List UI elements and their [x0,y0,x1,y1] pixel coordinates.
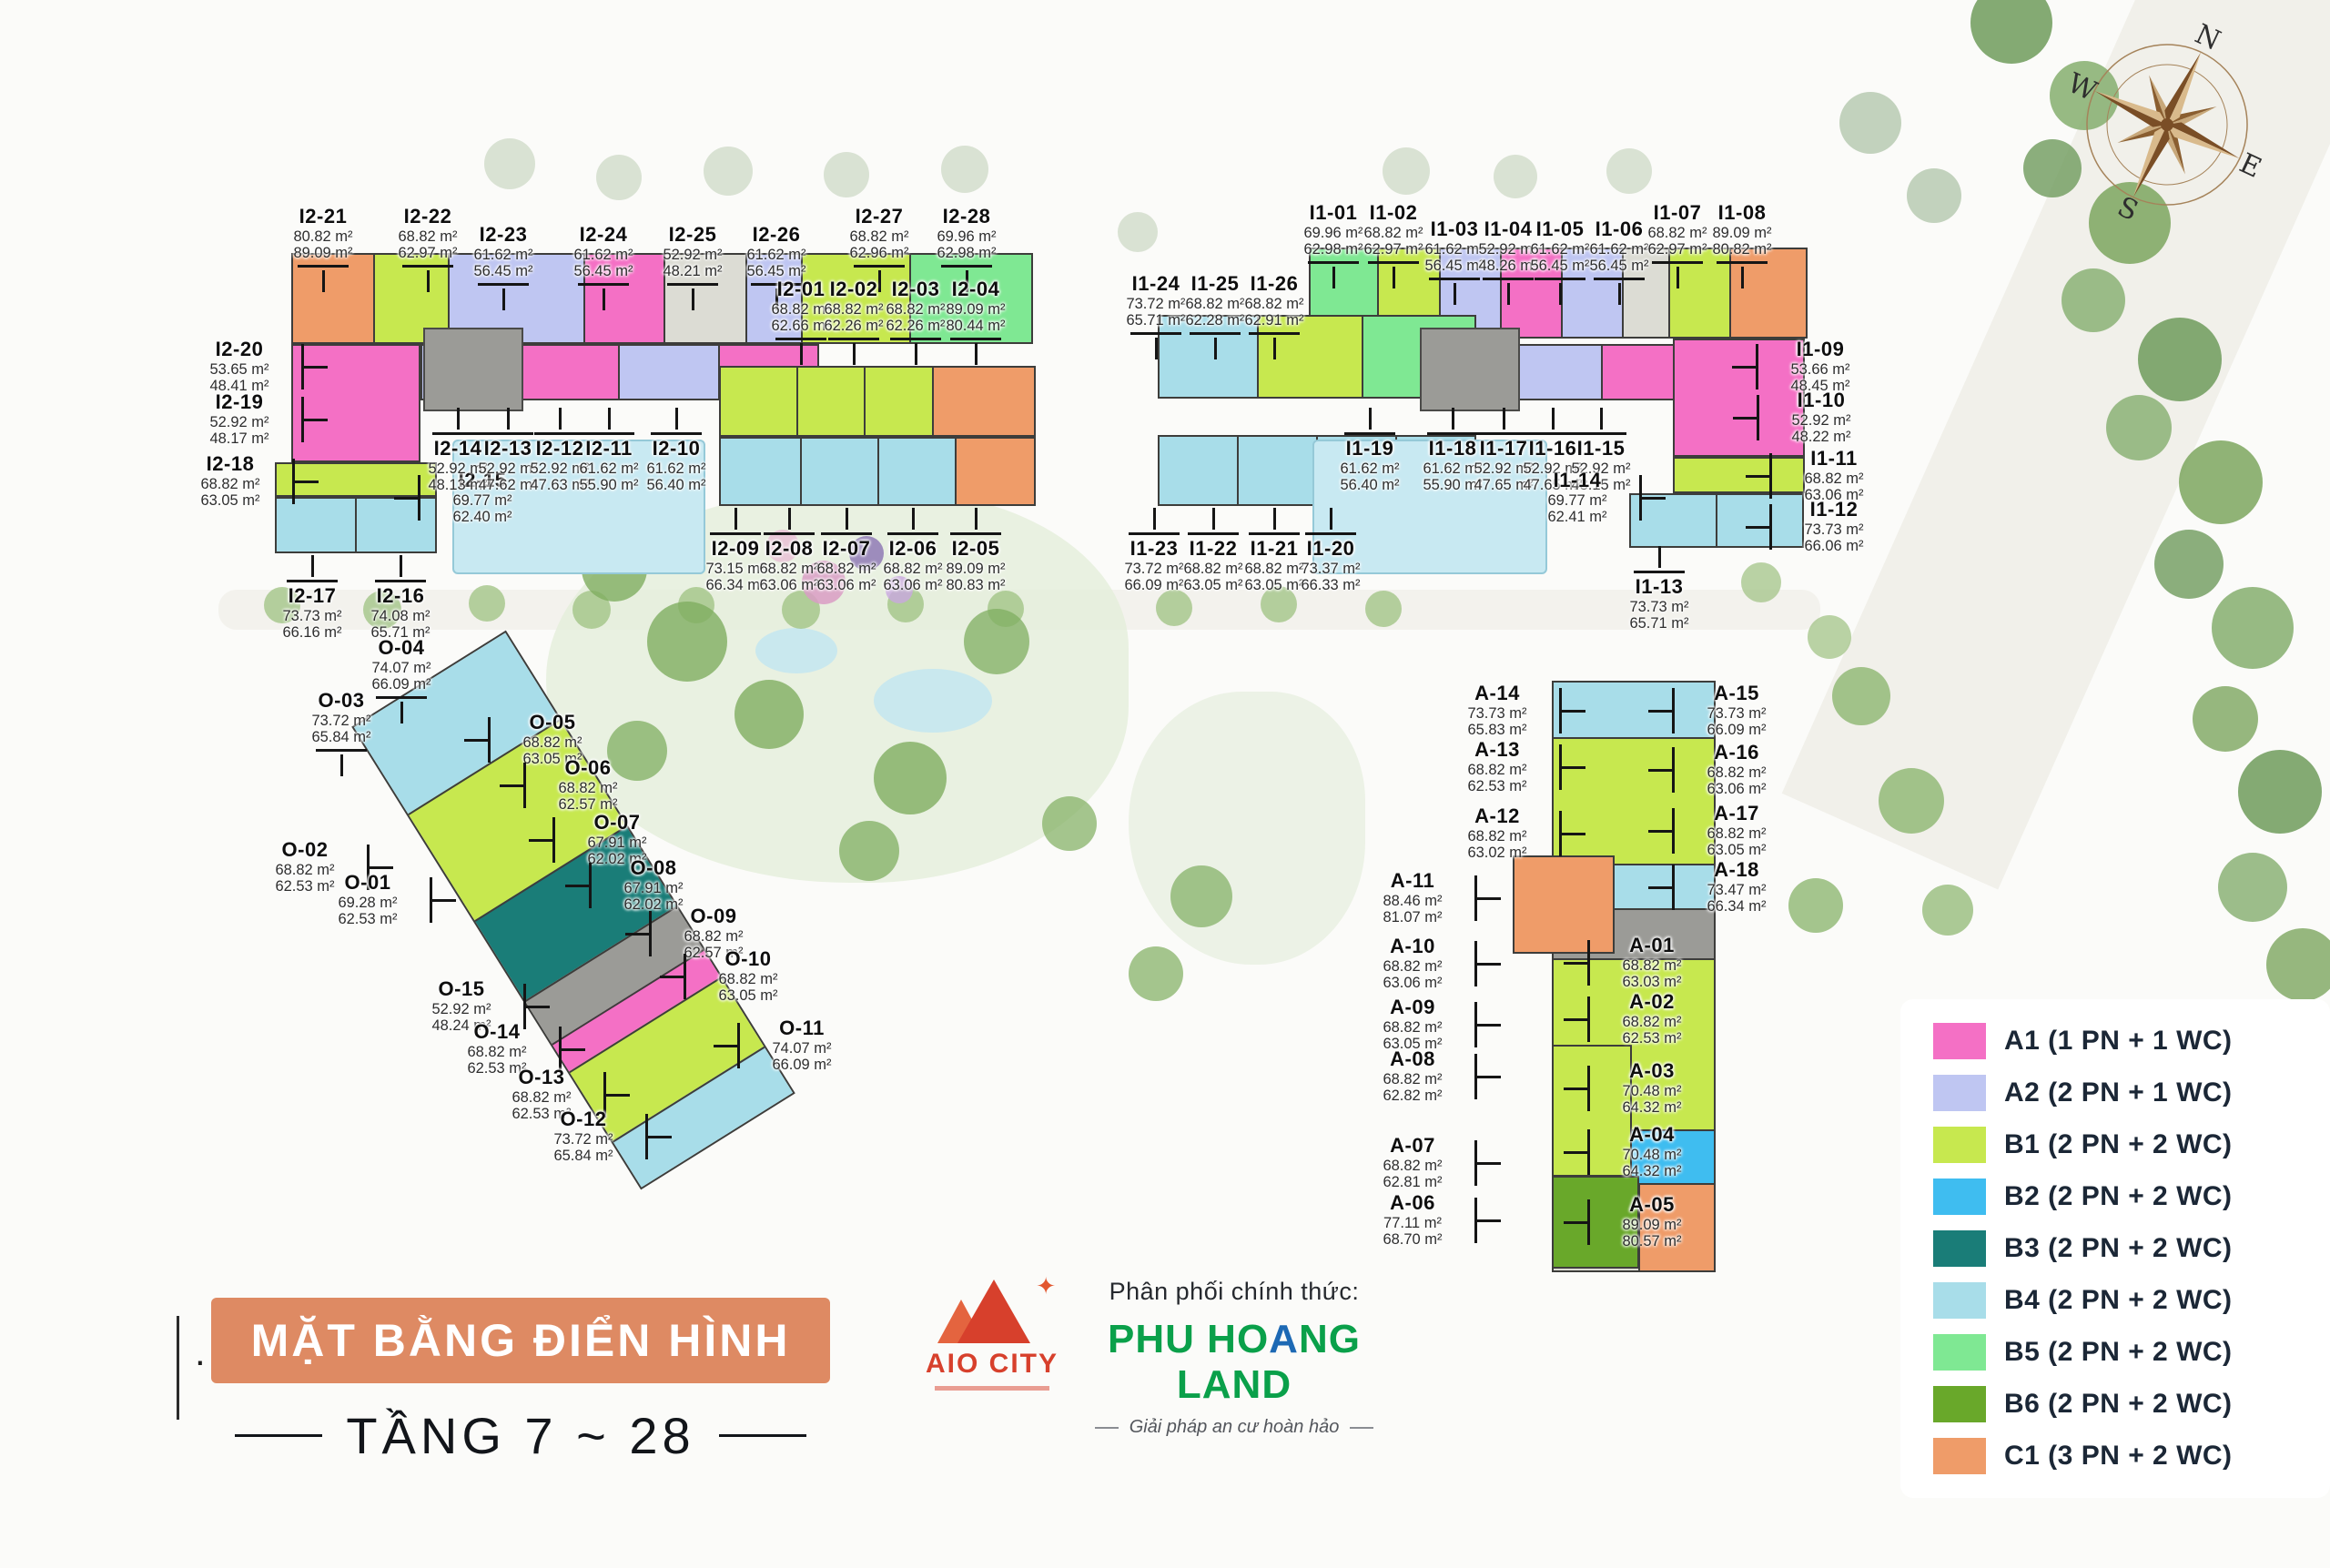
legend-item-b2: B2 (2 PN + 2 WC) [1933,1179,2233,1215]
unit-label-I1-22: I1-2268.82 m²63.05 m² [1158,508,1269,594]
unit-block [909,255,1031,342]
unit-label-A-08: A-0868.82 m²62.82 m² [1357,1048,1468,1105]
unit-block [1257,317,1361,397]
tree [1922,885,1973,936]
unit-label-O-14: O-1468.82 m²62.53 m² [441,1021,552,1077]
legend-item-b1: B1 (2 PN + 2 WC) [1933,1127,2233,1163]
unit-block [801,255,909,342]
unit-block [1729,249,1806,337]
unit-label-I2-19: I2-1952.92 m²48.17 m² [184,391,295,448]
building-i2-right-bottom [719,437,1036,506]
tree [1839,92,1901,154]
tree [1970,0,2052,64]
building-a-unit-a11 [1513,855,1615,954]
tagline-text: Giải pháp an cư hoàn hảo [1130,1417,1340,1438]
tree [596,155,642,200]
unit-block [1675,340,1803,455]
legend-swatch-b4 [1933,1282,1986,1319]
building-i2-right-top [719,366,1036,437]
unit-label-A-09: A-0968.82 m²63.05 m² [1357,996,1468,1053]
building-i2-core [423,328,523,411]
unit-label-A-14: A-1473.73 m²65.83 m² [1442,683,1553,739]
unit-block [932,368,1034,435]
legend-item-c1: C1 (3 PN + 2 WC) [1933,1438,2233,1474]
unit-block [664,255,745,342]
unit-label-I1-23: I1-2373.72 m²66.09 m² [1099,508,1210,594]
unit-block [355,499,435,551]
tree [941,146,988,193]
unit-label-A-13: A-1368.82 m²62.53 m² [1442,739,1553,795]
compass-s-label: S [2112,191,2143,228]
unit-block [1640,1185,1714,1270]
unit-label-I2-20: I2-2053.65 m²48.41 m² [184,339,295,395]
tree [1118,212,1158,252]
legend-swatch-c1 [1933,1438,1986,1474]
tree [704,147,753,196]
unit-block [1160,317,1257,397]
unit-block [1675,459,1803,491]
tree [1365,591,1402,627]
unit-label-A-06: A-0677.11 m²68.70 m² [1357,1192,1468,1249]
tree [2106,395,2172,460]
brand-a: A [1269,1317,1299,1361]
compass-w-label: W [2062,67,2102,108]
unit-block [796,368,865,435]
unit-block [721,439,800,504]
tagline-line-left [1095,1427,1119,1429]
building-i2-left-mid [275,462,437,497]
building-a-unit-a06 [1552,1176,1639,1269]
legend-label-a2: A2 (2 PN + 1 WC) [2004,1077,2233,1108]
unit-label-O-02: O-0268.82 m²62.53 m² [249,839,360,895]
unit-block [1160,437,1237,504]
unit-block [1237,437,1316,504]
title-accent-line [177,1316,179,1420]
tree [1741,562,1781,602]
building-a-lower-left [1552,1045,1632,1177]
unit-block [955,439,1034,504]
tagline-line-right [1350,1427,1373,1429]
unit-label-I2-18: I2-1868.82 m²63.05 m² [175,453,286,510]
tree [607,721,667,781]
tree [1170,865,1232,927]
building-i2-left-bottom [275,497,437,553]
tree [874,742,947,814]
tree [2218,853,2287,922]
unit-block [800,439,877,504]
subtitle-line-right [719,1434,806,1437]
unit-label-A-07: A-0768.82 m²62.81 m² [1357,1135,1468,1191]
tree [1494,155,1537,198]
building-i1-pool [1312,440,1547,574]
compass-e-label: E [2234,147,2266,185]
unit-block [1500,249,1561,337]
tree [1879,768,1944,834]
tree [2212,587,2294,669]
unit-block [877,439,955,504]
legend-swatch-b2 [1933,1179,1986,1215]
tree [839,821,899,881]
tree [964,609,1029,674]
page-title-text: MẶT BẰNG ĐIỂN HÌNH [251,1314,791,1367]
unit-block [293,255,373,342]
legend-swatch-b6 [1933,1386,1986,1422]
tree [766,530,799,562]
tree [469,585,505,622]
page-title: MẶT BẰNG ĐIỂN HÌNH [211,1298,830,1383]
unit-block [1561,249,1622,337]
developer-logo: ✦ AIO CITY [912,1270,1072,1391]
tree [1383,147,1430,195]
tree [2179,440,2263,524]
distributor-brand: PHU HOANG LAND [1089,1317,1380,1408]
legend-swatch-b1 [1933,1127,1986,1163]
compass-n-label: N [2190,20,2225,57]
building-i2-left-wing [291,344,420,462]
unit-block [1554,737,1714,864]
aio-mountain-icon: ✦ [912,1270,1072,1347]
legend-item-a2: A2 (2 PN + 1 WC) [1933,1075,2233,1111]
tree [886,576,913,603]
tree [1129,946,1183,1001]
tree [264,587,300,623]
legend: A1 (1 PN + 1 WC)A2 (2 PN + 1 WC)B1 (2 PN… [1933,1023,2233,1474]
aio-triangle-main [957,1280,1030,1343]
legend-label-b2: B2 (2 PN + 2 WC) [2004,1181,2233,1212]
unit-block [520,346,618,399]
unit-label-O-01: O-0169.28 m²62.53 m² [312,872,423,928]
unit-label-A-11: A-1188.46 m²81.07 m² [1357,870,1468,926]
building-i1-right-mid [1673,457,1805,493]
unit-block [277,499,355,551]
page-subtitle: TẦNG 7 ~ 28 [211,1406,830,1465]
legend-label-b5: B5 (2 PN + 2 WC) [2004,1337,2233,1368]
unit-block [745,255,801,342]
tree [1261,586,1297,622]
unit-block [1716,495,1802,546]
tree [1832,667,1890,725]
compass-rose: N E S W [2062,20,2272,229]
aio-tagline-bar [935,1386,1049,1391]
tree [1156,590,1192,626]
unit-block [583,255,664,342]
tree [802,561,846,604]
tree [824,152,869,197]
legend-label-b3: B3 (2 PN + 2 WC) [2004,1233,2233,1264]
legend-swatch-b5 [1933,1334,1986,1371]
building-i2-pool [452,440,705,574]
tree [734,680,804,749]
tree [1808,615,1851,659]
building-i1-right-wing [1673,339,1805,457]
distributor-heading: Phân phối chính thức: [1089,1278,1380,1306]
legend-item-b5: B5 (2 PN + 2 WC) [1933,1334,2233,1371]
tree [1788,878,1843,933]
compass-star-icon [2062,20,2272,229]
unit-label-A-12: A-1268.82 m²63.02 m² [1442,805,1553,862]
title-dot: . [195,1330,206,1374]
tree [647,602,727,682]
tree [2062,268,2125,332]
unit-block [1631,495,1716,546]
legend-label-b1: B1 (2 PN + 2 WC) [2004,1129,2233,1160]
legend-label-b6: B6 (2 PN + 2 WC) [2004,1389,2233,1420]
legend-swatch-b3 [1933,1230,1986,1267]
tree [1907,168,1961,223]
unit-block [293,346,419,460]
legend-item-b4: B4 (2 PN + 2 WC) [1933,1282,2233,1319]
site-plan-canvas: I2-2180.82 m²89.09 m²I2-2268.82 m²62.97 … [0,0,2330,1568]
unit-block [864,368,932,435]
legend-label-c1: C1 (3 PN + 2 WC) [2004,1441,2233,1472]
east-park [1129,692,1365,965]
page-subtitle-text: TẦNG 7 ~ 28 [346,1406,694,1465]
distributor-block: Phân phối chính thức: PHU HOANG LAND Giả… [1089,1278,1380,1438]
tree [2154,530,2224,599]
legend-item-b6: B6 (2 PN + 2 WC) [1933,1386,2233,1422]
building-i2-top-bar [291,253,1033,344]
unit-block [1554,683,1714,737]
building-i1-core [1420,328,1520,411]
tree [2138,318,2222,401]
pond [755,628,837,673]
tree [849,536,884,571]
tree [1042,796,1097,851]
unit-block [1622,249,1668,337]
distributor-tagline: Giải pháp an cư hoàn hảo [1089,1417,1380,1438]
legend-label-b4: B4 (2 PN + 2 WC) [2004,1285,2233,1316]
unit-block [277,464,435,495]
building-a-unit-a05 [1638,1183,1716,1272]
unit-block [618,346,717,399]
unit-block [1668,249,1729,337]
legend-swatch-a2 [1933,1075,1986,1111]
unit-block [721,368,796,435]
tree [2238,750,2322,834]
unit-block [1510,346,1600,399]
tree [484,138,535,189]
tree [363,591,401,629]
developer-name: AIO CITY [912,1349,1072,1380]
legend-swatch-a1 [1933,1023,1986,1059]
tree [2266,928,2330,1001]
pond [874,669,992,733]
subtitle-line-left [235,1434,322,1437]
unit-label-O-15: O-1552.92 m²48.24 m² [406,978,517,1035]
legend-item-a1: A1 (1 PN + 1 WC) [1933,1023,2233,1059]
legend-label-a1: A1 (1 PN + 1 WC) [2004,1026,2233,1057]
unit-label-A-10: A-1068.82 m²63.06 m² [1357,936,1468,992]
unit-block [1554,1047,1630,1175]
tree [2193,686,2258,752]
aio-star-icon: ✦ [1036,1272,1056,1300]
unit-label-I1-15: I1-1552.92 m²48.15 m² [1545,408,1656,494]
brand-prefix: PHU HO [1108,1317,1269,1361]
tree [1606,148,1652,194]
building-i1-right-bottom [1629,493,1804,548]
unit-block [1514,857,1613,952]
unit-block [1554,1178,1637,1267]
legend-item-b3: B3 (2 PN + 2 WC) [1933,1230,2233,1267]
